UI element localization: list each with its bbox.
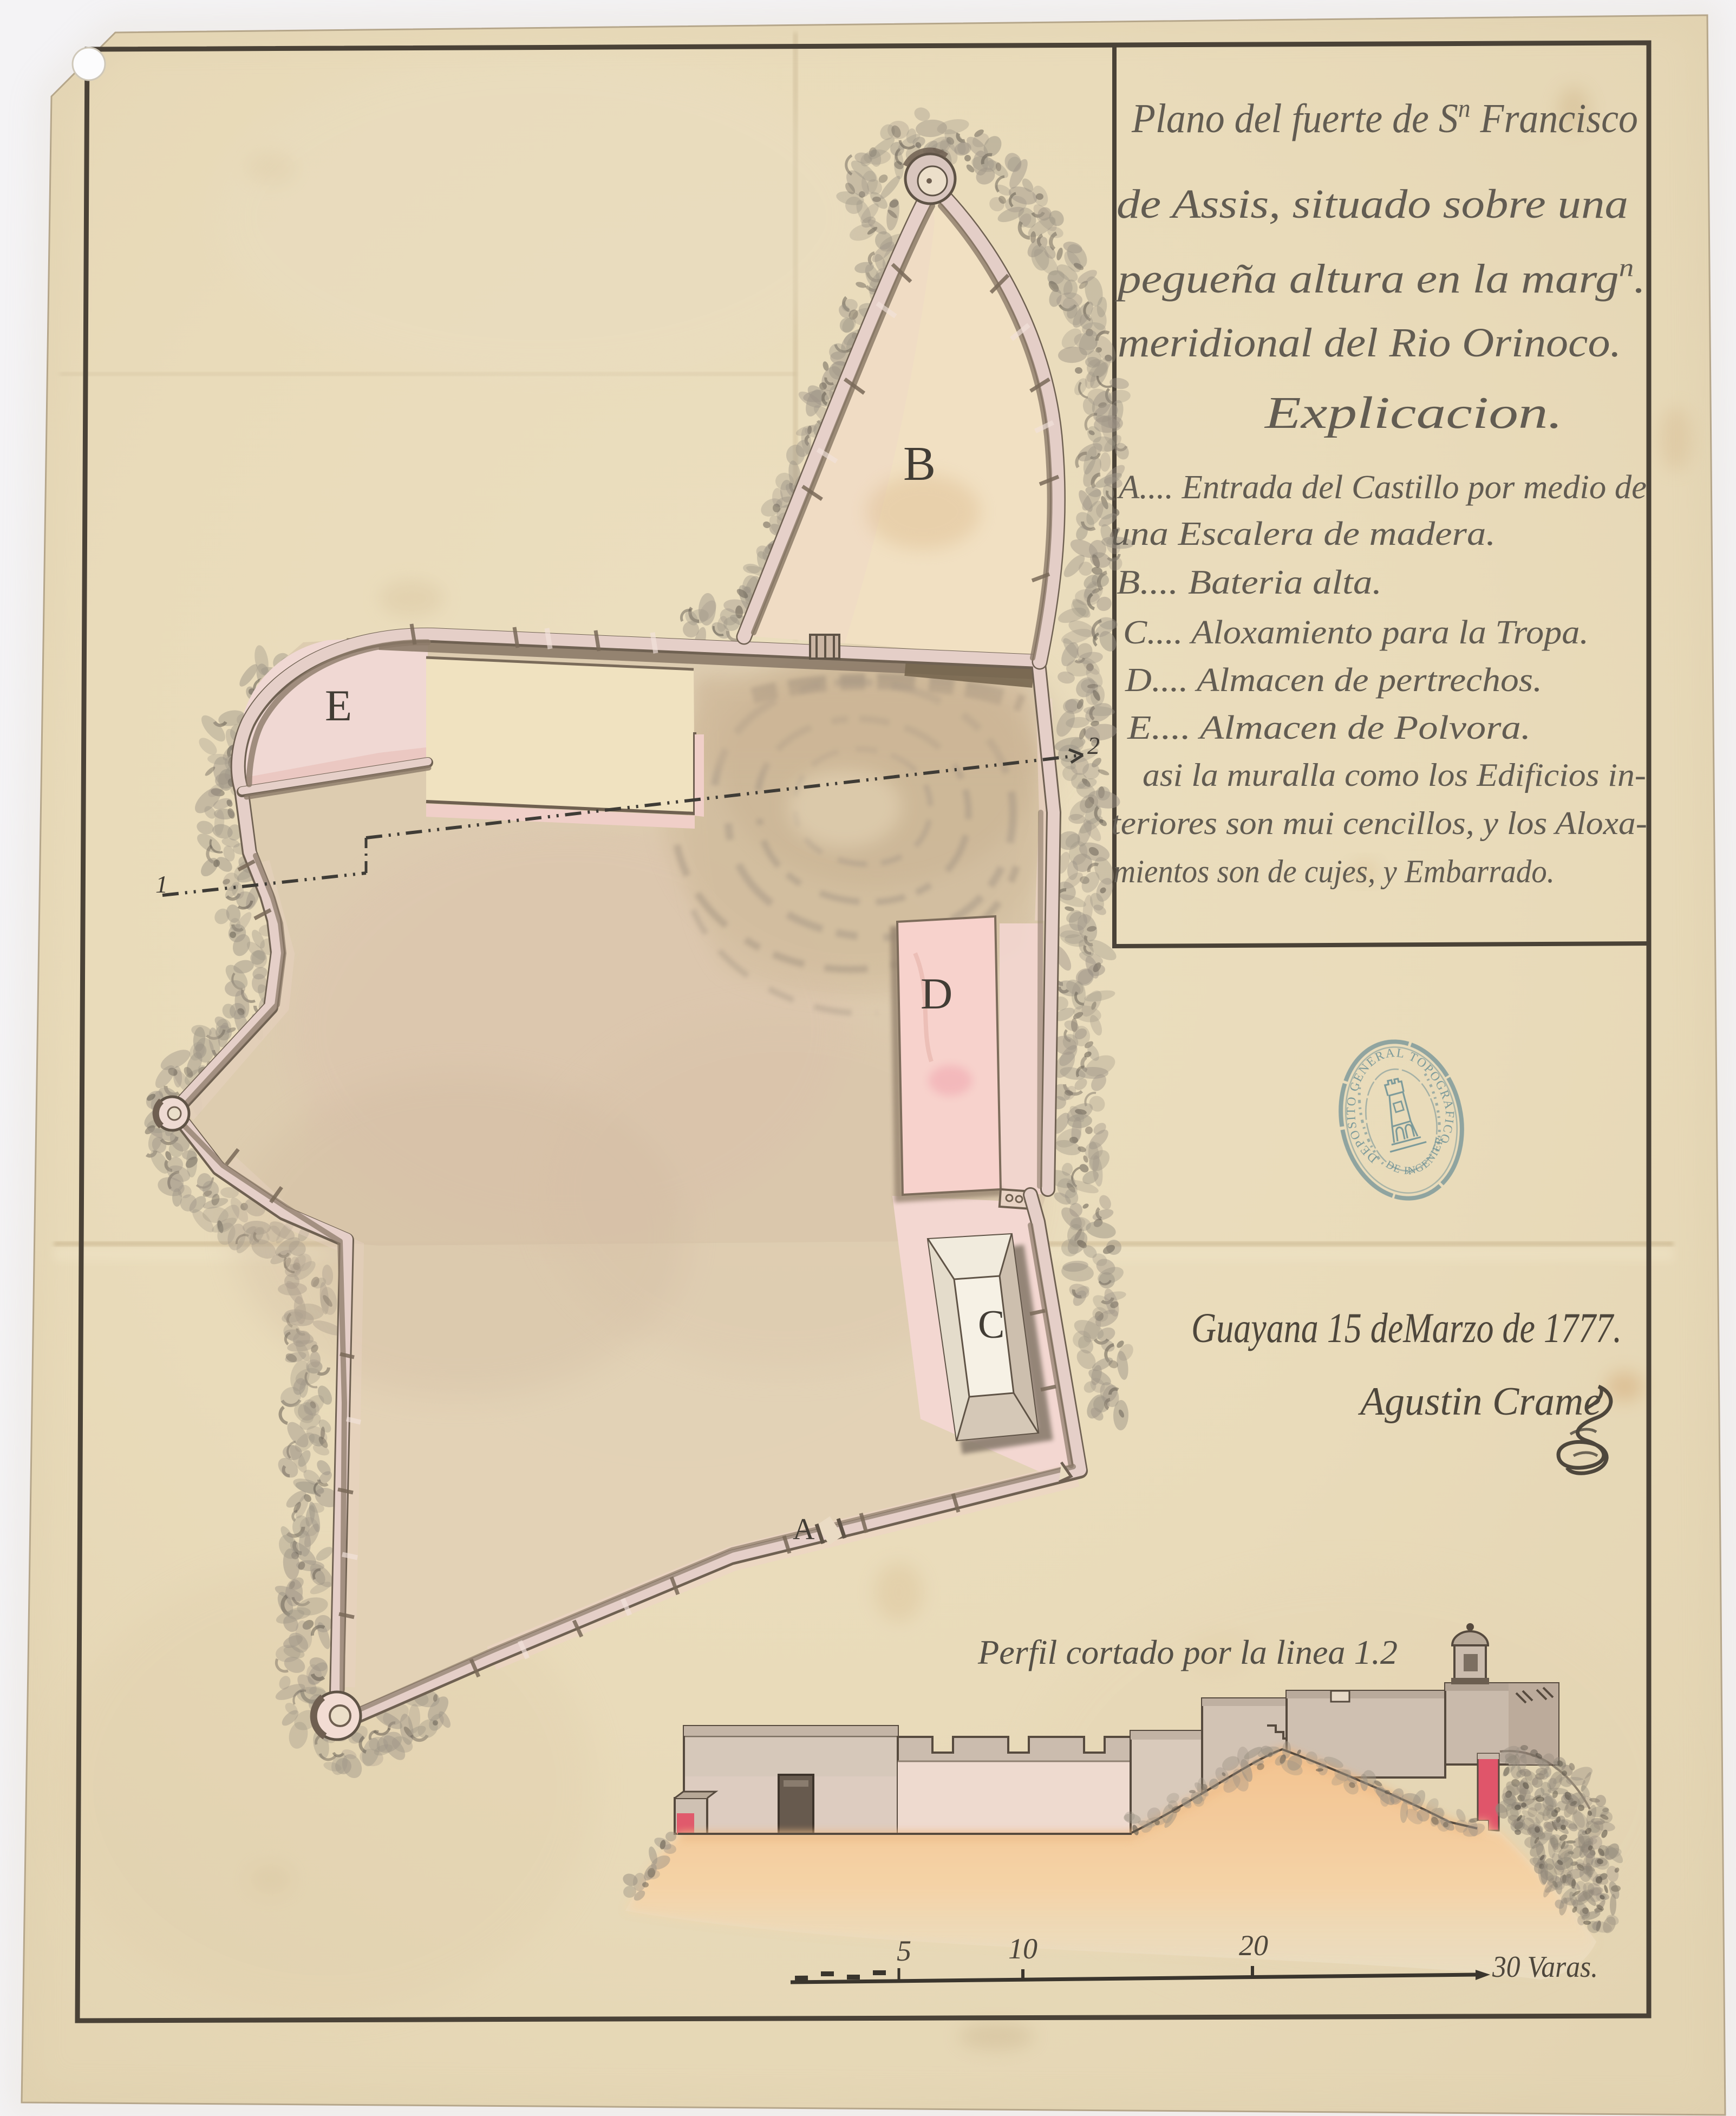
svg-text:Agustin Crame: Agustin Crame — [1358, 1379, 1601, 1424]
svg-text:1: 1 — [155, 870, 168, 898]
svg-text:10: 10 — [1008, 1932, 1037, 1965]
svg-text:Plano del fuerte de Sn Francis: Plano del fuerte de Sn Francisco — [1131, 94, 1638, 141]
svg-text:B: B — [903, 437, 936, 491]
svg-text:B.... Bateria alta.: B.... Bateria alta. — [1117, 563, 1382, 601]
svg-text:20: 20 — [1239, 1929, 1268, 1962]
svg-text:pegueña altura en la margn.: pegueña altura en la margn. — [1114, 253, 1646, 302]
svg-text:asi la muralla como los Edific: asi la muralla como los Edificios in- — [1143, 757, 1646, 793]
svg-text:meridional del Rio Orinoco.: meridional del Rio Orinoco. — [1118, 320, 1621, 366]
svg-text:D: D — [921, 969, 952, 1018]
svg-text:una Escalera de madera.: una Escalera de madera. — [1111, 516, 1496, 552]
svg-text:D.... Almacen de pertrechos.: D.... Almacen de pertrechos. — [1125, 662, 1542, 699]
svg-text:5: 5 — [897, 1935, 911, 1967]
svg-text:Guayana 15 deMarzo de 1777.: Guayana 15 deMarzo de 1777. — [1191, 1304, 1622, 1351]
svg-text:2: 2 — [1087, 732, 1100, 759]
svg-text:Explicacion.: Explicacion. — [1264, 388, 1563, 438]
svg-text:E: E — [325, 681, 352, 730]
svg-text:C.... Aloxamiento para la Trop: C.... Aloxamiento para la Tropa. — [1123, 614, 1589, 651]
svg-text:C: C — [978, 1303, 1004, 1347]
svg-text:A.... Entrada del Castillo por: A.... Entrada del Castillo por medio de — [1117, 469, 1647, 506]
svg-text:de Assis, situado sobre una: de Assis, situado sobre una — [1117, 181, 1628, 227]
svg-text:A: A — [793, 1513, 815, 1546]
svg-text:E.... Almacen de Polvora.: E.... Almacen de Polvora. — [1127, 709, 1531, 746]
svg-text:30 Varas.: 30 Varas. — [1492, 1950, 1598, 1984]
svg-text:teriores son mui cencillos, y: teriores son mui cencillos, y los Aloxa- — [1111, 805, 1647, 841]
svg-text:mientos son de cujes, y Embarr: mientos son de cujes, y Embarrado. — [1113, 854, 1555, 889]
svg-text:Perfil cortado por la linea 1.: Perfil cortado por la linea 1.2 — [977, 1633, 1398, 1671]
